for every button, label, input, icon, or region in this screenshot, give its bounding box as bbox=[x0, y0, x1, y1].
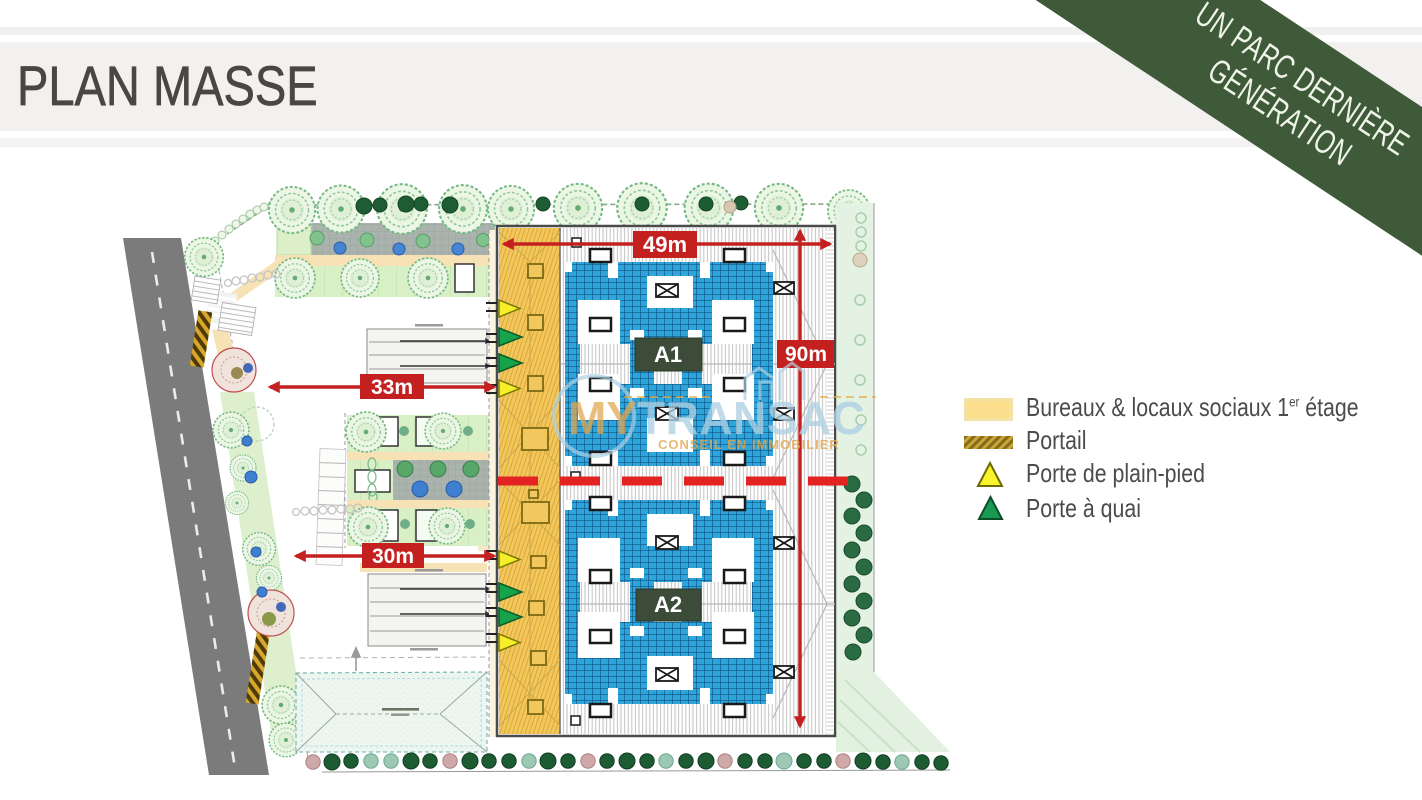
svg-text:A1: A1 bbox=[654, 342, 682, 367]
svg-text:A2: A2 bbox=[654, 592, 682, 617]
svg-text:49m: 49m bbox=[643, 232, 687, 257]
svg-text:33m: 33m bbox=[371, 376, 413, 399]
svg-text:30m: 30m bbox=[372, 545, 414, 568]
svg-text:MY: MY bbox=[568, 392, 637, 444]
svg-text:CONSEIL EN IMMOBILIER: CONSEIL EN IMMOBILIER bbox=[658, 437, 840, 452]
